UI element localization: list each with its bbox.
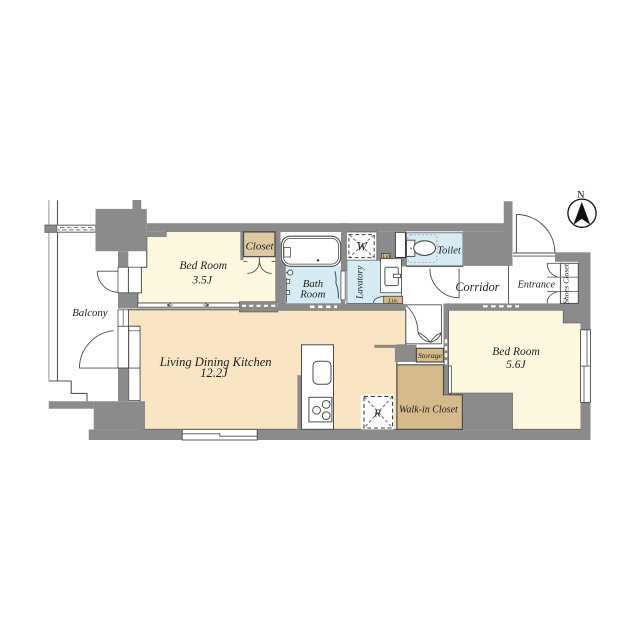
svg-text:Room: Room [299,288,325,300]
svg-text:3.5J: 3.5J [192,274,213,286]
svg-text:W: W [357,240,369,254]
svg-text:Entrance: Entrance [517,279,556,290]
svg-text:Toilet: Toilet [437,246,462,257]
svg-text:Bed Room: Bed Room [180,260,228,272]
svg-text:Bed Room: Bed Room [492,346,540,358]
svg-text:R: R [373,407,381,419]
svg-text:Shoes Closet: Shoes Closet [562,263,571,304]
svg-text:Walk-in Closet: Walk-in Closet [399,404,458,415]
svg-text:Lavatory: Lavatory [354,265,364,300]
svg-text:12.2J: 12.2J [200,366,229,380]
svg-text:Closet: Closet [245,241,274,253]
svg-text:Balcony: Balcony [72,307,108,319]
svg-text:Storage: Storage [418,351,443,360]
svg-text:5.6J: 5.6J [506,359,526,371]
svg-text:Corridor: Corridor [455,280,499,294]
svg-text:N: N [577,190,585,201]
svg-text:Lin.: Lin. [387,297,399,304]
